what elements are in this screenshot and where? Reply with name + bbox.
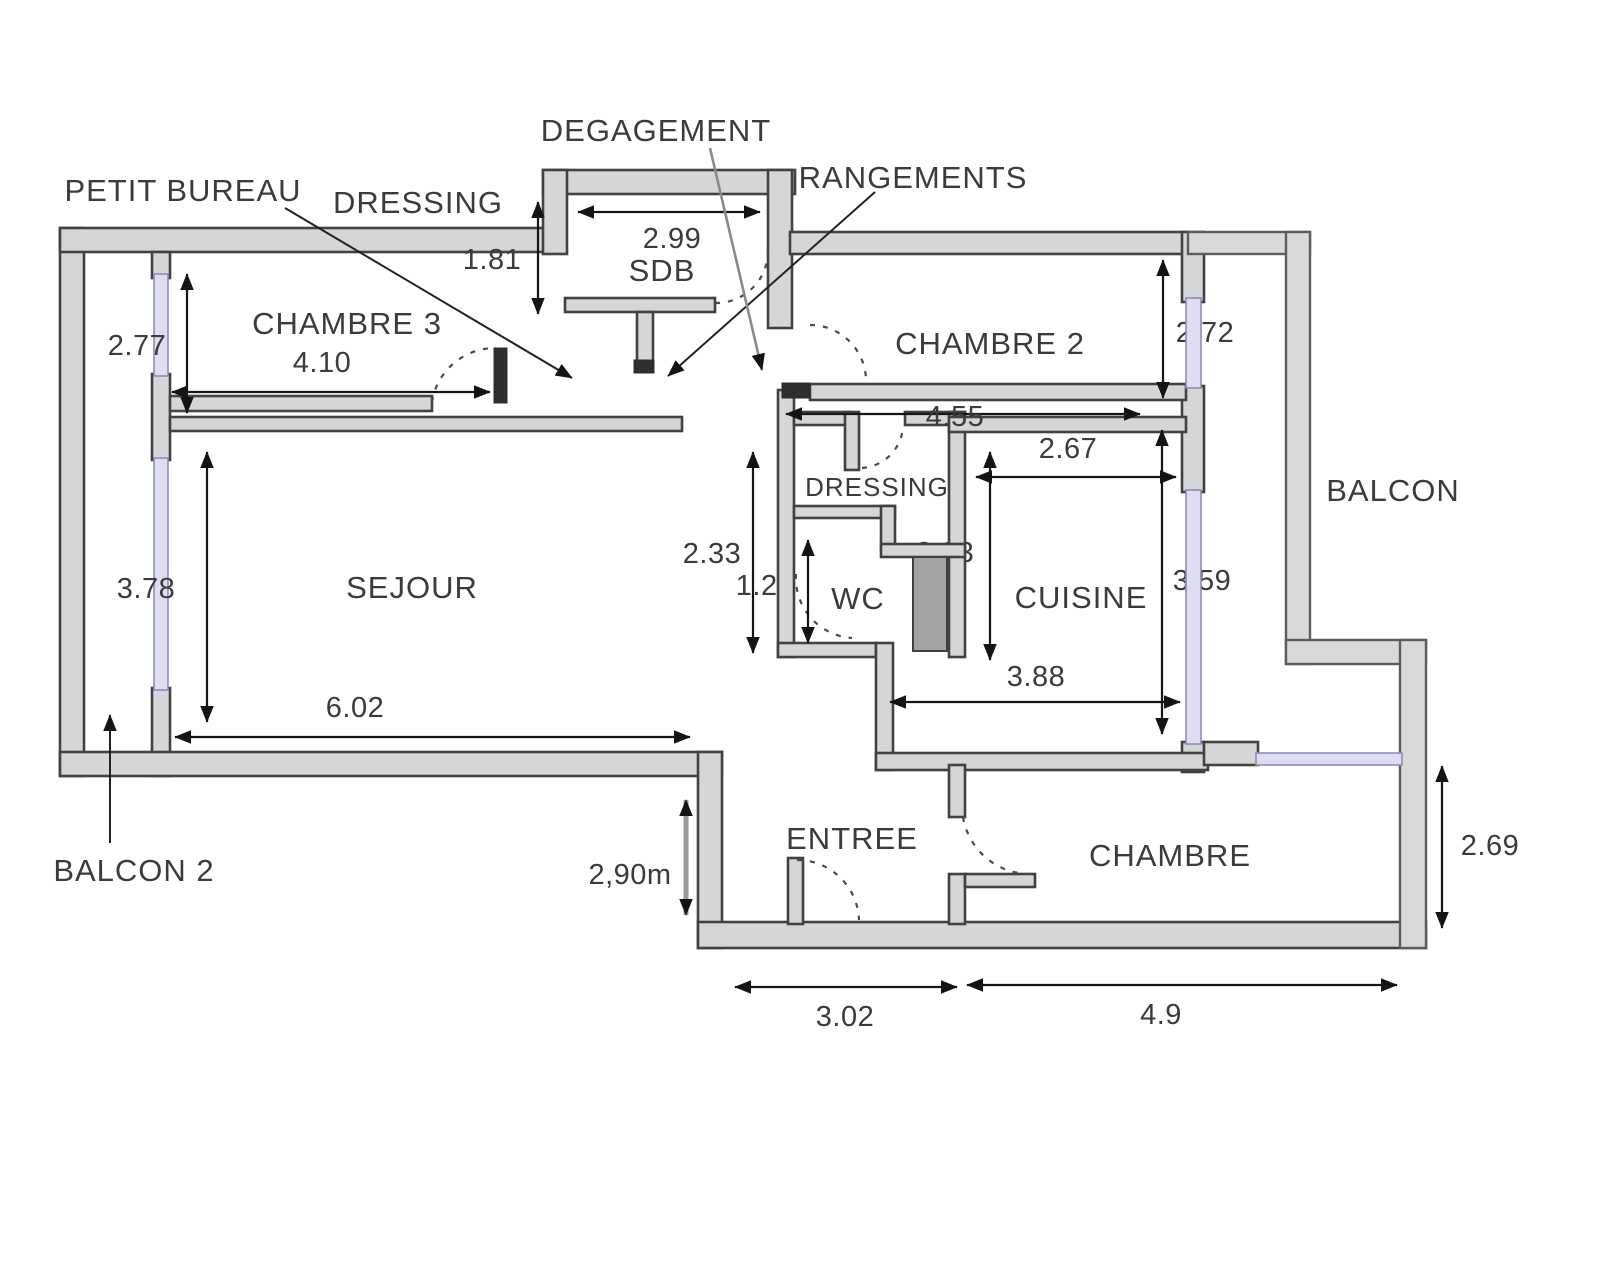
floorplan-canvas: 2.33 1.25 3.59 2.72	[0, 0, 1600, 1262]
wall-segment	[788, 858, 803, 924]
floorplan-page: 2.33 1.25 3.59 2.72	[0, 0, 1600, 1262]
label-sejour: SEJOUR	[346, 570, 478, 605]
door-arc	[963, 817, 1031, 874]
label-entree: ENTREE	[786, 821, 918, 856]
window	[1186, 298, 1201, 388]
wall-segment	[60, 752, 722, 776]
wall-segment	[170, 396, 432, 411]
door-arc	[862, 426, 903, 468]
wall-segment	[949, 765, 965, 817]
window	[1256, 753, 1402, 765]
dim-sejour-width: 6.02	[326, 692, 384, 724]
wall-segment	[790, 232, 1188, 254]
wall-segment	[845, 412, 859, 470]
dim-chambre2-window: 2.72	[1176, 317, 1234, 349]
wall-segment	[152, 374, 170, 460]
wall-segment	[810, 384, 1186, 400]
dim-sdb-width: 2.99	[643, 223, 701, 255]
label-cuisine: CUISINE	[1015, 580, 1148, 615]
dim-entree-width: 3.02	[816, 1001, 874, 1033]
label-wc: WC	[831, 581, 885, 616]
label-balcon: BALCON	[1326, 473, 1459, 508]
wall-segment	[565, 298, 715, 312]
dim-chambre-width: 4.9	[1140, 999, 1182, 1031]
label-petit-bureau: PETIT BUREAU	[64, 173, 301, 208]
door-arc	[810, 325, 866, 381]
wall-segment	[543, 170, 567, 254]
window	[1186, 490, 1201, 744]
wall-segment	[698, 922, 1426, 948]
door-arc	[797, 860, 859, 920]
door-leaf	[634, 360, 654, 373]
label-dressing-small: DRESSING	[805, 472, 949, 502]
balcony-wall	[1400, 640, 1426, 948]
wall-segment	[949, 417, 1186, 432]
door-leaf	[782, 383, 810, 398]
wall-segment	[778, 643, 876, 657]
wall-segment	[637, 312, 653, 364]
label-chambre2: CHAMBRE 2	[895, 326, 1085, 361]
dim-chambre3-width: 4.10	[293, 347, 351, 379]
dim-cuisine-width: 2.67	[1039, 433, 1097, 465]
dim-entree-height: 2,90m	[588, 859, 671, 891]
wall-segment	[965, 874, 1035, 887]
dim-cuisine-total-width: 3.88	[1007, 661, 1065, 693]
dim-chambre3-height: 2.77	[108, 330, 166, 362]
wall-segment	[778, 390, 794, 657]
wall-segment	[60, 228, 84, 776]
wall-segment	[949, 874, 965, 924]
dim-chambre-height: 2.69	[1461, 830, 1519, 862]
dim-cuisine-window-height: 3.59	[1173, 565, 1231, 597]
wall-segment	[876, 753, 1208, 770]
door-leaf	[494, 348, 507, 403]
wall-segment	[1182, 386, 1204, 492]
wall-segment	[170, 417, 682, 431]
balcony-wall	[1286, 232, 1310, 664]
door-arc	[432, 348, 496, 402]
wall-segment	[876, 643, 893, 770]
duct-shaft	[913, 557, 947, 651]
label-balcon2: BALCON 2	[53, 853, 214, 888]
dim-dressing-depth: 1.81	[463, 244, 521, 276]
wall-segment	[949, 412, 965, 657]
wall-segment	[698, 752, 722, 948]
wall-segment	[881, 544, 965, 557]
wall-segment	[1204, 742, 1258, 765]
label-sdb: SDB	[629, 253, 696, 288]
label-chambre3: CHAMBRE 3	[252, 306, 442, 341]
wall-segment	[768, 170, 792, 328]
label-degagement: DEGAGEMENT	[541, 113, 771, 148]
label-rangements: RANGEMENTS	[799, 160, 1028, 195]
label-dressing-top: DRESSING	[333, 185, 503, 220]
dim-chambre2-width: 4.55	[926, 401, 984, 433]
dim-sejour-height: 3.78	[117, 573, 175, 605]
label-chambre: CHAMBRE	[1089, 838, 1251, 873]
dim-passage-height: 2.33	[683, 538, 741, 570]
wall-segment	[543, 170, 795, 194]
